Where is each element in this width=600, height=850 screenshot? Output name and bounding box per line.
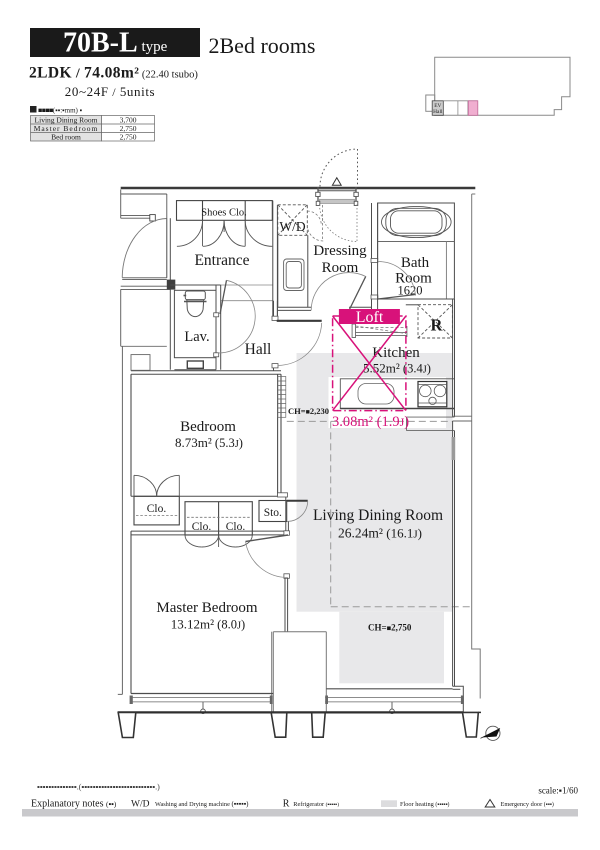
- svg-text:Refrigerator (▪▪▪▪▪): Refrigerator (▪▪▪▪▪): [293, 801, 339, 808]
- svg-text:W/D: W/D: [279, 219, 305, 234]
- svg-text:Lav.: Lav.: [184, 329, 209, 345]
- svg-text:Kitchen: Kitchen: [372, 345, 420, 361]
- svg-text:R: R: [283, 799, 290, 810]
- svg-text:20~24F / 5units: 20~24F / 5units: [65, 84, 155, 99]
- svg-text:Bath: Bath: [401, 255, 430, 271]
- svg-text:2,750: 2,750: [120, 132, 137, 141]
- svg-text:scale:▪1/60: scale:▪1/60: [538, 786, 578, 796]
- svg-text:W/D: W/D: [131, 800, 150, 810]
- svg-text:CH=■2,230: CH=■2,230: [288, 406, 329, 416]
- svg-text:CH=■2,750: CH=■2,750: [368, 623, 412, 633]
- svg-text:Loft: Loft: [356, 309, 384, 326]
- svg-text:Hall: Hall: [433, 109, 443, 115]
- svg-text:26.24m² (16.1J): 26.24m² (16.1J): [338, 526, 422, 541]
- svg-text:Master Bedroom: Master Bedroom: [156, 600, 258, 616]
- svg-text:Bedroom: Bedroom: [180, 419, 236, 435]
- svg-text:type: type: [142, 39, 168, 55]
- svg-text:8.73m² (5.3J): 8.73m² (5.3J): [175, 435, 243, 450]
- svg-text:13.12m² (8.0J): 13.12m² (8.0J): [171, 617, 245, 632]
- svg-text:3.08m² (1.9J): 3.08m² (1.9J): [332, 414, 409, 430]
- svg-text:Dressing: Dressing: [313, 243, 367, 259]
- svg-text:Shoes Clo.: Shoes Clo.: [201, 208, 247, 219]
- svg-text:Living Dining Room: Living Dining Room: [313, 507, 443, 524]
- svg-text:Clo.: Clo.: [147, 503, 167, 515]
- svg-text:Sto.: Sto.: [264, 507, 282, 519]
- svg-text:■■■■(▪▪:▪mm) ▪: ■■■■(▪▪:▪mm) ▪: [38, 107, 83, 115]
- svg-text:Explanatory notes (▪▪): Explanatory notes (▪▪): [31, 799, 117, 810]
- svg-text:Emergency door (▪▪▪): Emergency door (▪▪▪): [501, 801, 554, 808]
- svg-text:Bed room: Bed room: [51, 132, 81, 141]
- svg-text:2Bed rooms: 2Bed rooms: [209, 33, 316, 58]
- svg-text:Floor heating (▪▪▪▪▪): Floor heating (▪▪▪▪▪): [400, 801, 450, 808]
- svg-text:Entrance: Entrance: [194, 252, 249, 269]
- svg-text:Washing and Drying machine (▪▪: Washing and Drying machine (▪▪▪▪▪): [155, 800, 249, 808]
- svg-text:Hall: Hall: [245, 341, 272, 358]
- svg-text:70B-L: 70B-L: [63, 28, 138, 59]
- svg-text:▪▪▪▪▪▪▪▪▪▪▪▪▪▪.(▪▪▪▪▪▪▪▪▪▪▪▪▪▪: ▪▪▪▪▪▪▪▪▪▪▪▪▪▪.(▪▪▪▪▪▪▪▪▪▪▪▪▪▪▪▪▪▪▪▪▪▪▪▪…: [37, 783, 160, 792]
- svg-text:R: R: [431, 316, 444, 335]
